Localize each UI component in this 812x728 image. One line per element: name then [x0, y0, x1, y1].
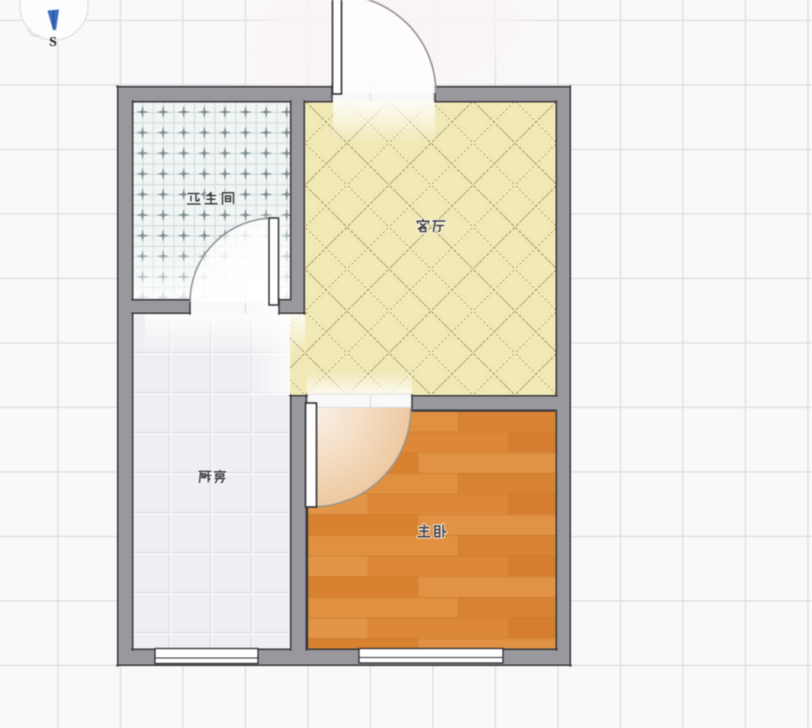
svg-text:S: S [49, 35, 57, 50]
